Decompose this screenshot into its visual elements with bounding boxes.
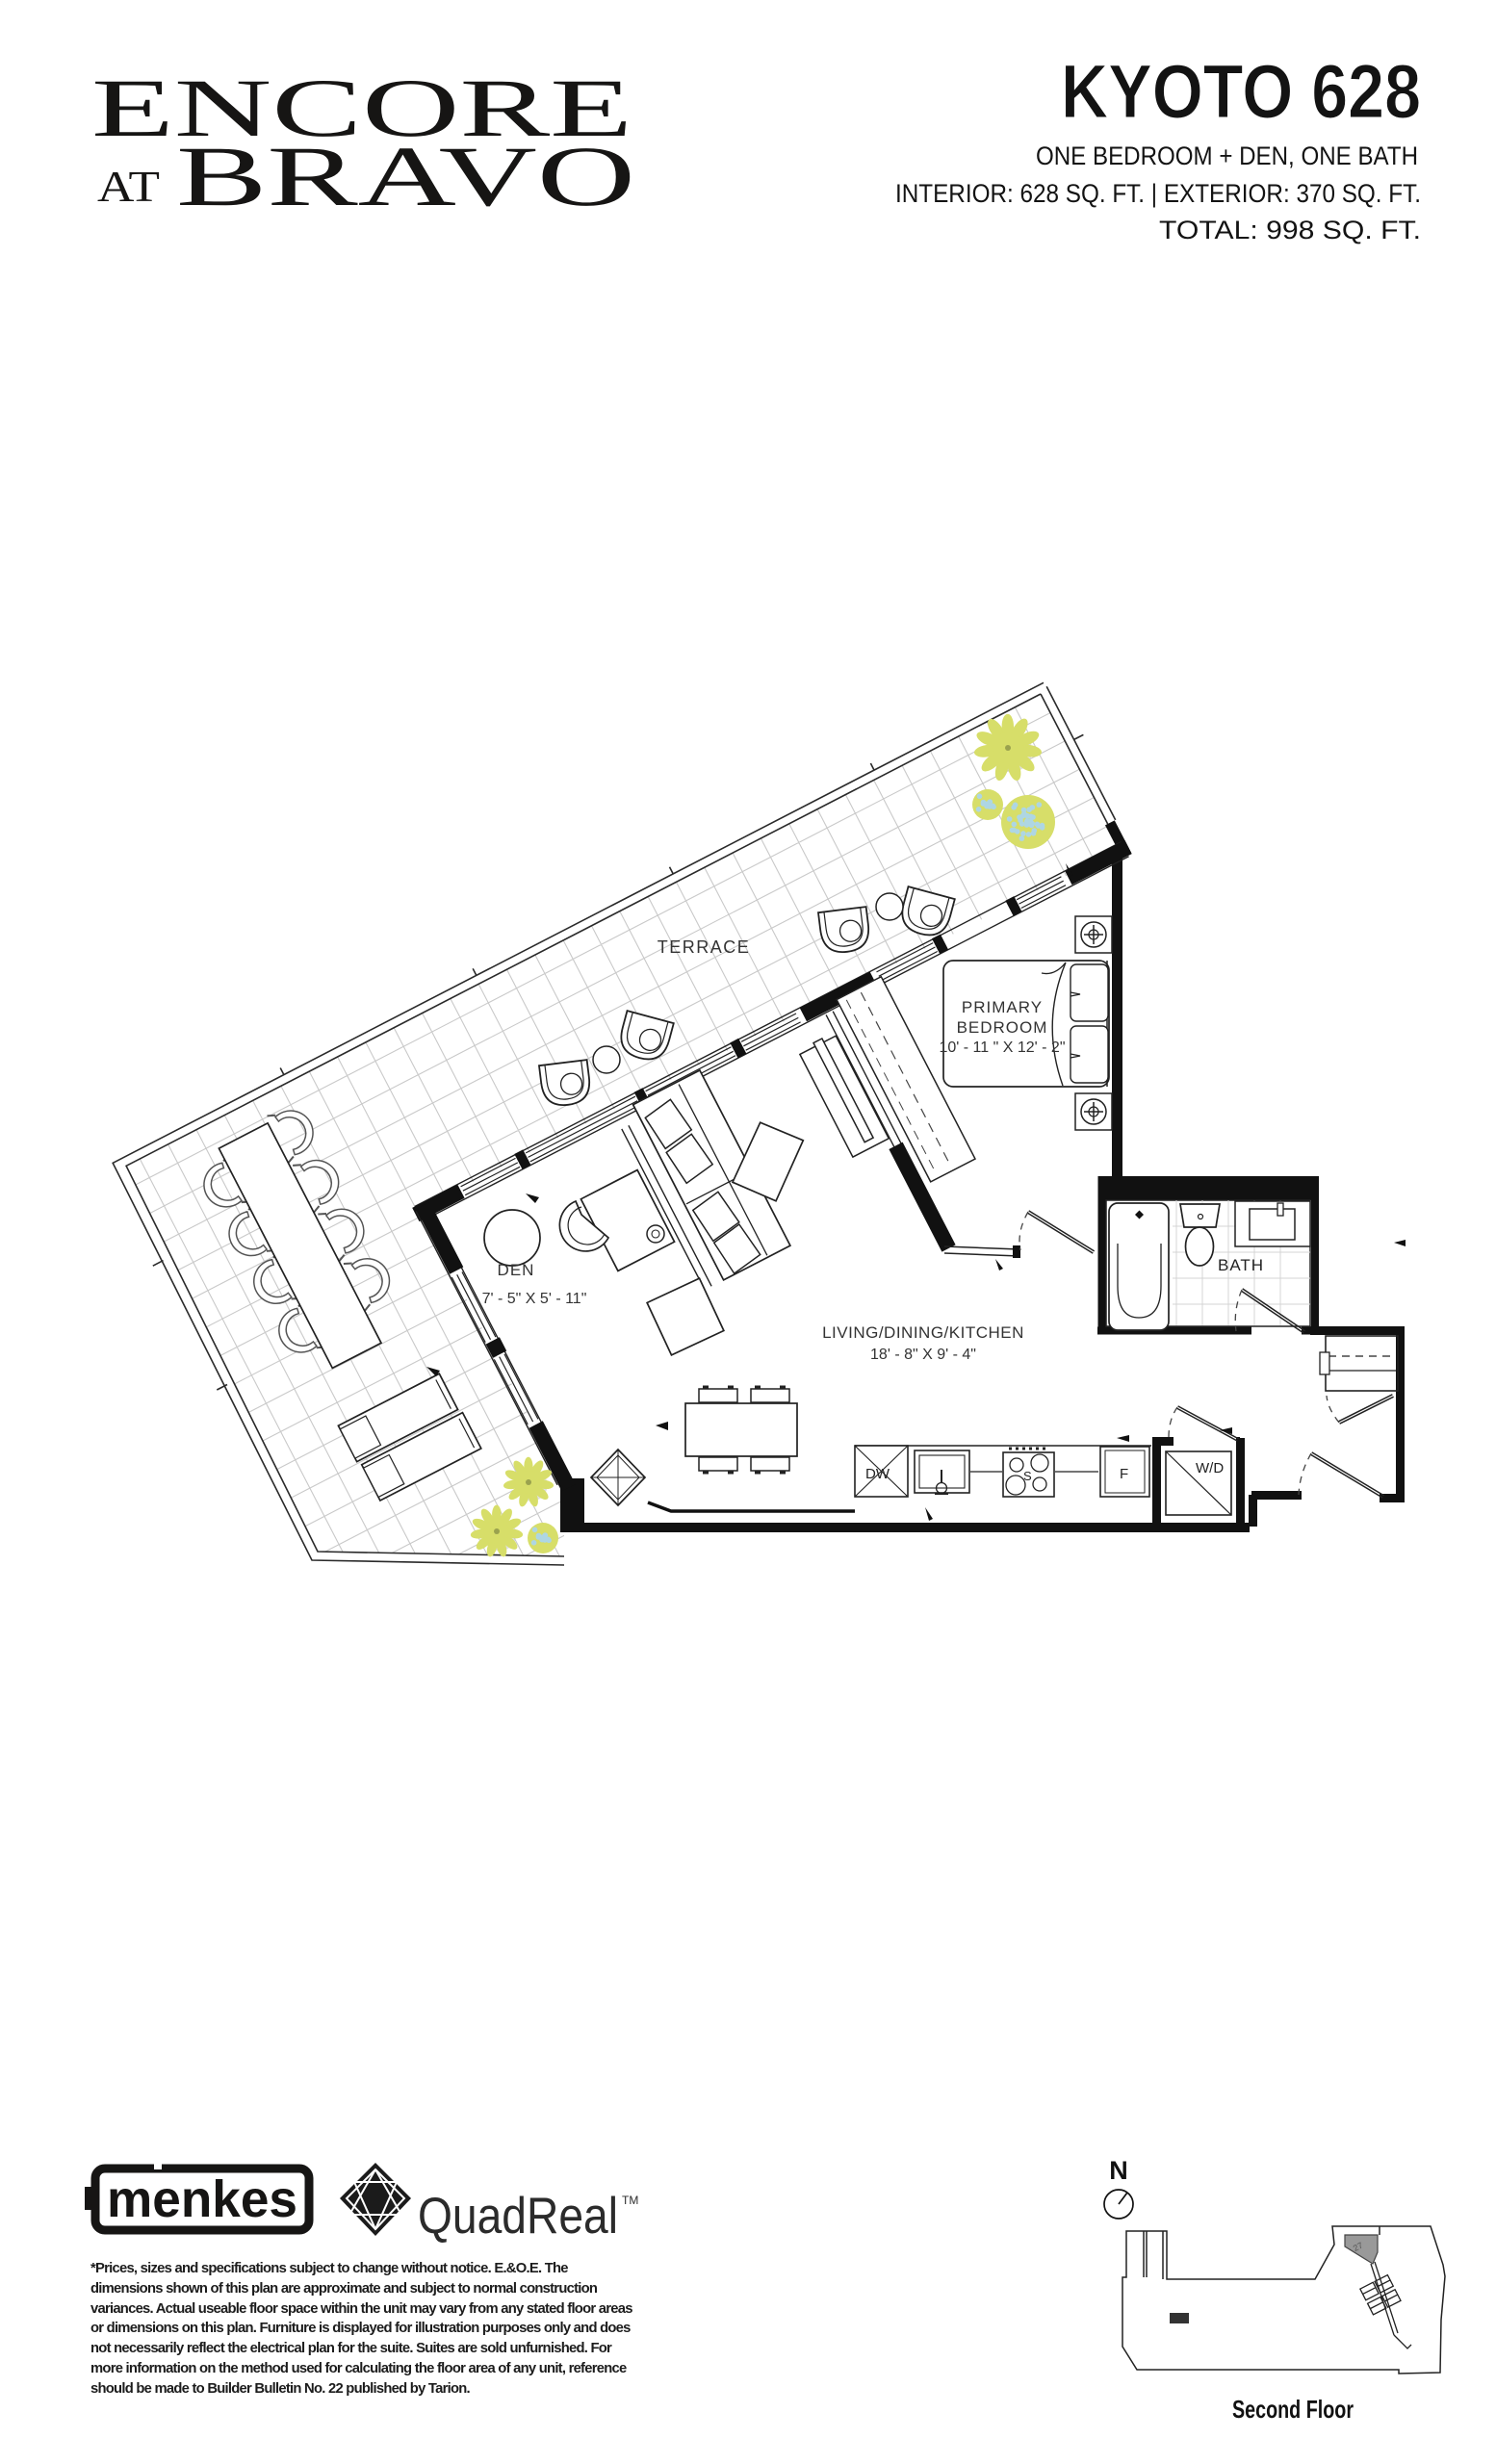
svg-text:Second Floor: Second Floor (1232, 2395, 1354, 2424)
svg-text:DW: DW (865, 1466, 890, 1482)
svg-text:W/D: W/D (1196, 1460, 1224, 1476)
svg-text:more information on the method: more information on the method used for … (90, 2361, 627, 2376)
svg-text:KYOTO 628: KYOTO 628 (1061, 48, 1421, 134)
svg-text:DEN: DEN (498, 1261, 535, 1279)
svg-text:S: S (1023, 1469, 1032, 1483)
svg-text:TERRACE: TERRACE (658, 937, 751, 957)
svg-text:AT: AT (97, 163, 160, 211)
svg-text:QuadReal: QuadReal (418, 2188, 618, 2245)
svg-text:N: N (1109, 2156, 1128, 2185)
svg-text:or dimensions on this plan. Fu: or dimensions on this plan. Furniture is… (90, 2321, 631, 2336)
svg-text:INTERIOR: 628 SQ. FT. | EXTE: INTERIOR: 628 SQ. FT. | EXTERIOR: 370 SQ… (895, 179, 1421, 208)
svg-text:BRAVO: BRAVO (176, 130, 635, 224)
svg-text:PRIMARY: PRIMARY (962, 998, 1043, 1016)
svg-text:dimensions shown of this plan: dimensions shown of this plan are approx… (90, 2281, 598, 2297)
svg-text:*Prices, sizes and specificati: *Prices, sizes and specifications subjec… (90, 2261, 568, 2276)
svg-text:should be made to Builder Bull: should be made to Builder Bulletin No. 2… (90, 2381, 471, 2397)
svg-text:menkes: menkes (107, 2170, 297, 2228)
svg-text:F: F (1120, 1466, 1128, 1482)
svg-text:10' - 11 " X 12' - 2": 10' - 11 " X 12' - 2" (939, 1039, 1065, 1056)
svg-text:BEDROOM: BEDROOM (957, 1018, 1048, 1037)
svg-text:7' - 5" X 5' - 11": 7' - 5" X 5' - 11" (482, 1291, 587, 1307)
svg-text:TM: TM (622, 2194, 638, 2207)
svg-text:variances. Actual useable floo: variances. Actual useable floor space wi… (90, 2301, 632, 2317)
svg-text:ONE BEDROOM + DEN, ONE BATH: ONE BEDROOM + DEN, ONE BATH (1036, 141, 1418, 170)
svg-text:18' - 8" X 9' - 4": 18' - 8" X 9' - 4" (870, 1347, 976, 1363)
svg-text:not necessarily reflect the el: not necessarily reflect the electrical p… (90, 2341, 612, 2356)
svg-text:TOTAL: 998 SQ. FT.: TOTAL: 998 SQ. FT. (1159, 216, 1421, 244)
svg-text:LIVING/DINING/KITCHEN: LIVING/DINING/KITCHEN (822, 1323, 1024, 1342)
svg-text:BATH: BATH (1218, 1256, 1264, 1274)
